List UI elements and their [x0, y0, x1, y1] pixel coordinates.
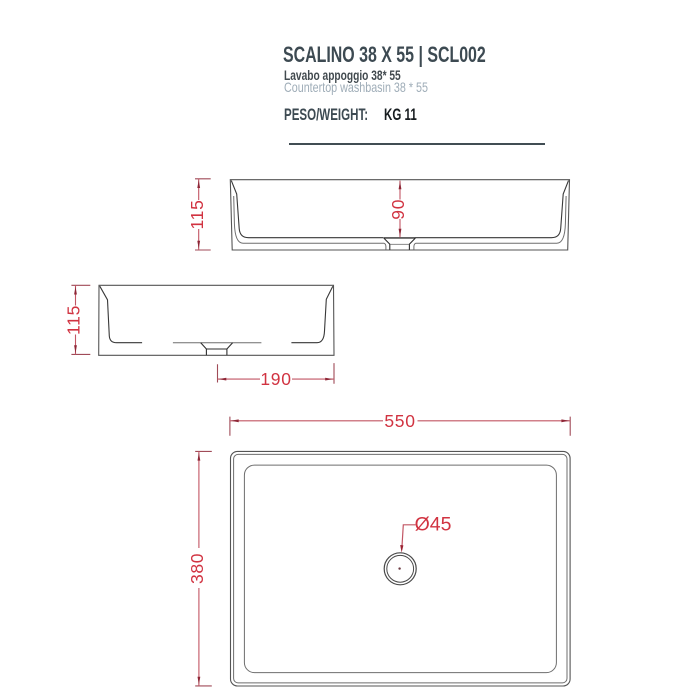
svg-text:Ø45: Ø45 — [415, 513, 452, 535]
svg-text:90: 90 — [388, 199, 408, 220]
svg-text:380: 380 — [187, 553, 207, 584]
svg-text:115: 115 — [64, 305, 84, 335]
svg-text:115: 115 — [187, 200, 207, 230]
svg-text:190: 190 — [260, 369, 291, 389]
svg-text:550: 550 — [384, 411, 415, 431]
